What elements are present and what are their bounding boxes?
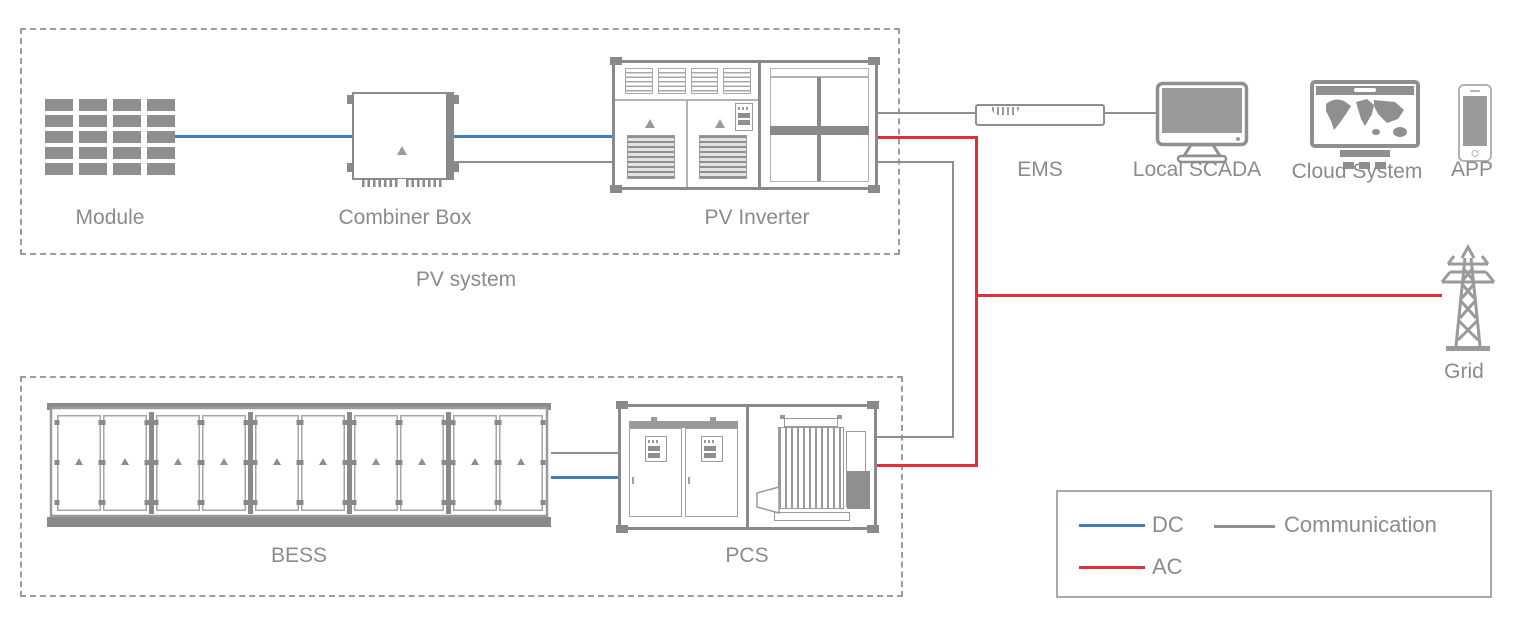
legend-communication-swatch xyxy=(1214,525,1275,528)
mount-tab-icon xyxy=(452,95,459,104)
mount-tab-icon xyxy=(452,163,459,172)
control-display-icon xyxy=(701,436,723,462)
vent-strip xyxy=(625,68,751,94)
dc-line-combiner-inverter xyxy=(454,135,612,138)
pcs-doors xyxy=(629,428,738,517)
pcs-transformer-section xyxy=(752,407,874,527)
bess-label: BESS xyxy=(271,544,327,568)
mount-tab-icon xyxy=(347,95,354,104)
comm-line-inverter-stub xyxy=(878,161,954,163)
pv-system-label: PV system xyxy=(416,268,516,292)
module-label: Module xyxy=(76,206,145,230)
cloud-system-label: Cloud System xyxy=(1292,160,1423,184)
legend-ac-swatch xyxy=(1079,566,1145,569)
mount-tab-icon xyxy=(347,163,354,172)
transformer-fins-icon xyxy=(778,427,844,509)
transformer-top-frame xyxy=(784,418,838,427)
vent-icon xyxy=(625,68,653,94)
inverter-right-section xyxy=(764,63,875,187)
control-display-icon xyxy=(735,103,753,131)
display-pedestal xyxy=(1340,150,1390,157)
power-led xyxy=(1236,137,1240,141)
tower-lattice xyxy=(1442,247,1494,346)
comm-line-vertical xyxy=(952,161,954,438)
door-handle xyxy=(632,477,634,484)
ac-line-to-pcs xyxy=(877,464,977,467)
cloud-system-icon xyxy=(1310,80,1420,172)
control-display-icon xyxy=(645,436,667,462)
vent-icon xyxy=(658,68,686,94)
louver-vent-icon xyxy=(699,135,747,179)
bess-icon xyxy=(47,403,551,527)
phone-home-button xyxy=(1472,150,1479,157)
phone-screen xyxy=(1463,96,1487,146)
tower-base xyxy=(1446,346,1490,351)
pcs-top-rail xyxy=(629,421,738,428)
comm-line-inverter-ems xyxy=(878,112,975,114)
warning-triangle-icon xyxy=(645,119,655,128)
grid-icon xyxy=(1432,242,1504,360)
monitor-screen xyxy=(1162,88,1242,133)
rail-clamp xyxy=(710,417,716,421)
pcs-icon xyxy=(618,404,877,530)
lifting-lug xyxy=(837,415,842,419)
pv-inverter-icon xyxy=(612,60,878,190)
ems-icon xyxy=(975,104,1105,126)
local-scada-label: Local SCADA xyxy=(1133,158,1261,182)
inverter-left-section xyxy=(615,63,761,187)
diagram-canvas: Module Combiner Box PV Inverter PV syste… xyxy=(0,0,1536,632)
pcs-door xyxy=(629,428,682,517)
lifting-lug xyxy=(780,415,785,419)
legend-ac-label: AC xyxy=(1152,554,1183,580)
phone-speaker xyxy=(1470,90,1480,92)
pv-inverter-label: PV Inverter xyxy=(704,206,809,230)
ac-line-to-grid xyxy=(978,294,1442,297)
terminal-teeth-icon xyxy=(362,179,444,187)
rail-clamp xyxy=(651,417,657,421)
legend-dc-swatch xyxy=(1079,524,1145,527)
dc-line-bess-pcs xyxy=(551,476,618,479)
monitor-stand xyxy=(1184,145,1220,156)
comm-line-combiner-inverter xyxy=(454,161,612,163)
combiner-box-label: Combiner Box xyxy=(338,206,471,230)
comm-line-bess-pcs xyxy=(551,452,618,454)
comm-line-to-pcs xyxy=(877,436,954,438)
ac-line-vertical xyxy=(975,136,978,467)
display-slit xyxy=(1354,88,1376,92)
warning-triangle-icon xyxy=(715,119,725,128)
solar-module-icon xyxy=(45,99,175,175)
transformer-duct-icon xyxy=(756,486,780,514)
grid-label: Grid xyxy=(1444,360,1484,384)
combiner-box-icon xyxy=(352,92,454,180)
bess-bottom-rail xyxy=(47,517,551,527)
pcs-converter-section xyxy=(621,407,749,527)
app-label: APP xyxy=(1451,158,1493,182)
warning-triangle-icon xyxy=(397,146,407,155)
pcs-door xyxy=(685,428,738,517)
door-handle xyxy=(688,477,690,484)
dc-line-module-combiner xyxy=(172,135,352,138)
louver-vent-icon xyxy=(627,135,675,179)
app-icon xyxy=(1458,84,1492,162)
legend-communication-label: Communication xyxy=(1284,512,1437,538)
ac-line-inverter xyxy=(878,136,978,139)
comm-line-ems-scada xyxy=(1105,112,1158,114)
pcs-label: PCS xyxy=(725,544,768,568)
door-divider xyxy=(686,101,688,187)
legend-dc-label: DC xyxy=(1152,512,1184,538)
legend-box: DC Communication AC xyxy=(1056,490,1492,598)
ems-label: EMS xyxy=(1017,158,1063,182)
vent-icon xyxy=(691,68,719,94)
local-scada-icon xyxy=(1154,80,1250,164)
window-cross-bar xyxy=(770,126,869,135)
transformer-base xyxy=(774,512,850,521)
transformer-dark-block xyxy=(847,471,870,509)
ems-vent-notch xyxy=(987,107,1023,115)
vent-icon xyxy=(723,68,751,94)
